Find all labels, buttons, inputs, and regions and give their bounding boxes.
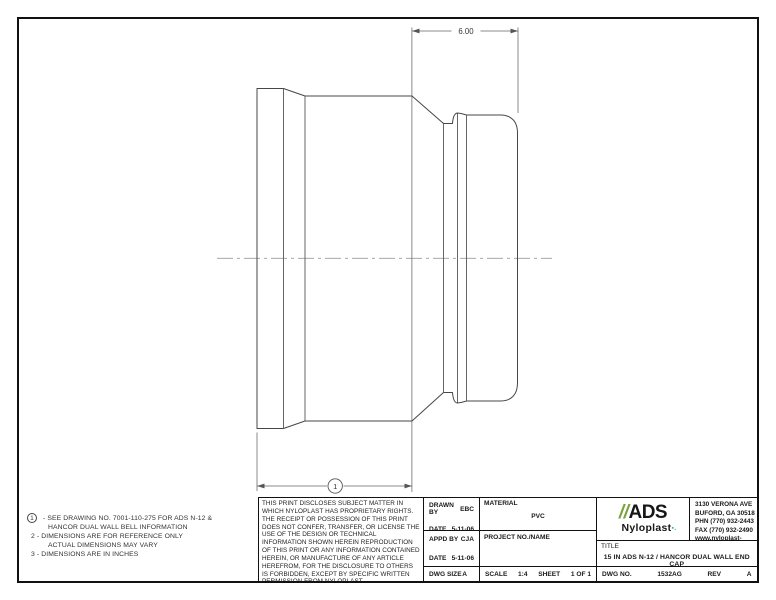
title-cell: TITLE 15 IN ADS N-12 / HANCOR DUAL WALL … — [597, 541, 757, 567]
date-label: DATE — [429, 555, 446, 562]
appd-by-value: CJA — [461, 536, 474, 543]
note-1-balloon-number: 1 — [30, 515, 33, 522]
nyloplast-logo: Nyloplast▪. — [609, 523, 689, 534]
dwg-size-value: A — [462, 571, 467, 578]
dwg-size-label: DWG SIZE — [429, 571, 462, 578]
arrowhead-left — [257, 484, 265, 489]
ads-logo-text: ADS — [628, 502, 667, 523]
arrowhead-right — [405, 484, 413, 489]
note-2-text: 2 - DIMENSIONS ARE FOR REFERENCE ONLY — [31, 533, 183, 540]
balloon-number: 1 — [333, 482, 337, 491]
notes-list: 1 - SEE DRAWING NO. 7001-110-275 FOR ADS… — [27, 512, 262, 567]
material-label: MATERIAL — [480, 498, 596, 507]
dimension-bottom: 1 — [257, 479, 412, 493]
dwg-no-label: DWG NO. — [602, 571, 632, 578]
dwg-no-cell: DWG NO. 1532AG REV A — [597, 567, 757, 582]
drawing-title: 15 IN ADS N-12 / HANCOR DUAL WALL END CA… — [597, 554, 757, 567]
note-1-balloon: 1 — [27, 513, 37, 523]
address-line-2: BUFORD, GA 30518 — [695, 510, 757, 519]
scale-value: 1:4 — [518, 571, 528, 578]
scale-sheet-cell: SCALE 1:4 SHEET 1 OF 1 — [480, 567, 597, 582]
drawn-by-value: EBC — [460, 506, 474, 513]
drawn-by-cell: DRAWN BY EBC DATE 5-11-06 — [424, 498, 480, 531]
note-2-text-cont: ACTUAL DIMENSIONS MAY VARY — [48, 542, 158, 549]
title-label: TITLE — [597, 541, 757, 550]
company-logo: //ADS Nyloplast▪. — [597, 498, 690, 541]
dimension-top: 6.00 — [412, 27, 518, 36]
company-address: 3130 VERONA AVE BUFORD, GA 30518 PHN (77… — [690, 498, 757, 541]
note-1-text: - SEE DRAWING NO. 7001-110-275 FOR ADS N… — [43, 515, 212, 522]
scale-label: SCALE — [485, 571, 507, 578]
drawn-by-label: DRAWN BY — [429, 502, 460, 516]
dimension-top-value: 6.00 — [458, 27, 474, 36]
sheet-value: 1 OF 1 — [571, 571, 591, 578]
rev-label: REV — [708, 571, 722, 578]
project-label: PROJECT NO./NAME — [480, 531, 596, 541]
note-3-text: 3 - DIMENSIONS ARE IN INCHES — [31, 551, 138, 558]
dwg-no-value: 1532AG — [657, 571, 682, 578]
nyloplast-logo-mark-icon: ▪. — [671, 525, 676, 532]
arrowhead-right — [511, 29, 519, 34]
appd-by-cell: APPD BY CJA DATE 5-11-06 — [424, 531, 480, 567]
title-block: THIS PRINT DISCLOSES SUBJECT MATTER IN W… — [258, 497, 757, 581]
proprietary-disclaimer: THIS PRINT DISCLOSES SUBJECT MATTER IN W… — [259, 498, 424, 581]
drawing-sheet: 6.00 1 1 - SEE DRAWING NO. 7001-110-275 … — [0, 0, 776, 600]
rev-value: A — [747, 571, 752, 578]
note-1-text-cont: HANCOR DUAL WALL BELL INFORMATION — [48, 524, 188, 531]
dwg-size-cell: DWG SIZE A — [424, 567, 480, 582]
material-cell: MATERIAL PVC — [480, 498, 597, 531]
address-line-1: 3130 VERONA AVE — [695, 501, 757, 510]
project-cell: PROJECT NO./NAME — [480, 531, 597, 567]
material-value: PVC — [480, 513, 596, 520]
sheet-label: SHEET — [538, 571, 560, 578]
appd-by-label: APPD BY — [429, 536, 458, 543]
arrowhead-left — [412, 29, 420, 34]
nyloplast-logo-text: Nyloplast — [622, 522, 672, 534]
ads-logo: //ADS — [597, 503, 689, 523]
date-value: 5-11-06 — [452, 555, 474, 562]
phone-number: PHN (770) 932-2443 — [695, 518, 757, 527]
fax-number: FAX (770) 932-2490 — [695, 527, 757, 536]
